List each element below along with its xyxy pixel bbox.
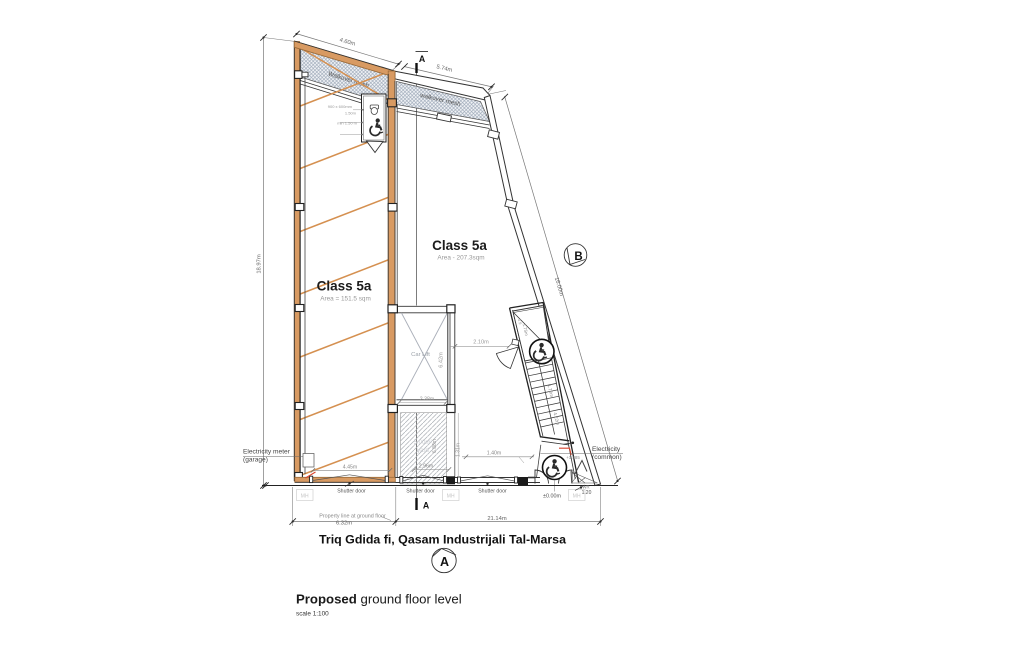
svg-text:1.20: 1.20 xyxy=(582,490,592,496)
svg-text:2.96m: 2.96m xyxy=(419,464,433,470)
svg-text:(garage): (garage) xyxy=(243,457,268,464)
svg-text:900 x 600mm: 900 x 600mm xyxy=(328,104,353,109)
svg-text:Electricity meter: Electricity meter xyxy=(243,449,291,456)
svg-text:MH: MH xyxy=(573,494,581,500)
svg-text:yard: yard xyxy=(417,448,429,454)
svg-text:Area = 151.5 sqm: Area = 151.5 sqm xyxy=(320,296,371,303)
svg-text:Triq Gdida fi, Qasam Industrij: Triq Gdida fi, Qasam Industrijali Tal-Ma… xyxy=(319,533,566,547)
svg-text:6.32m: 6.32m xyxy=(336,521,352,527)
svg-text:(common): (common) xyxy=(592,454,622,461)
svg-text:MH: MH xyxy=(301,494,309,500)
svg-text:WR: WR xyxy=(583,485,590,490)
svg-text:18.97m: 18.97m xyxy=(257,254,263,274)
svg-text:Class 5a: Class 5a xyxy=(317,279,372,294)
svg-text:1.50m: 1.50m xyxy=(345,111,357,116)
svg-text:Shutter door: Shutter door xyxy=(337,489,366,495)
svg-text:Proposed ground floor level: Proposed ground floor level xyxy=(296,592,462,607)
svg-text:5.00m²: 5.00m² xyxy=(414,440,433,446)
svg-text:Area - 207.3sqm: Area - 207.3sqm xyxy=(437,255,484,262)
svg-text:4.45m: 4.45m xyxy=(343,464,357,470)
svg-text:A: A xyxy=(423,501,430,511)
svg-text:scale 1:100: scale 1:100 xyxy=(296,611,329,618)
svg-text:Shutter door: Shutter door xyxy=(406,489,435,495)
svg-text:min 1.50 m: min 1.50 m xyxy=(337,121,357,126)
svg-text:21.14m: 21.14m xyxy=(487,516,507,522)
svg-text:±0.00m: ±0.00m xyxy=(543,494,561,500)
svg-text:2.10m: 2.10m xyxy=(473,340,489,346)
svg-text:2.38m: 2.38m xyxy=(420,397,434,403)
svg-text:Electricity: Electricity xyxy=(592,446,621,453)
svg-text:B: B xyxy=(574,251,582,263)
svg-text:Class 5a: Class 5a xyxy=(432,238,487,253)
svg-text:6.42m: 6.42m xyxy=(439,352,445,368)
svg-text:MH: MH xyxy=(447,494,455,500)
svg-text:6.88m: 6.88m xyxy=(432,439,438,453)
svg-text:Car Lift: Car Lift xyxy=(411,352,430,358)
svg-text:Shutter door: Shutter door xyxy=(478,489,507,495)
svg-text:+1.885: +1.885 xyxy=(566,455,580,460)
svg-text:A: A xyxy=(440,555,449,569)
svg-text:Property line at ground floor: Property line at ground floor xyxy=(319,514,386,520)
svg-text:A: A xyxy=(419,54,426,64)
svg-text:1.40m: 1.40m xyxy=(487,450,501,456)
svg-text:1.31m: 1.31m xyxy=(456,443,462,457)
